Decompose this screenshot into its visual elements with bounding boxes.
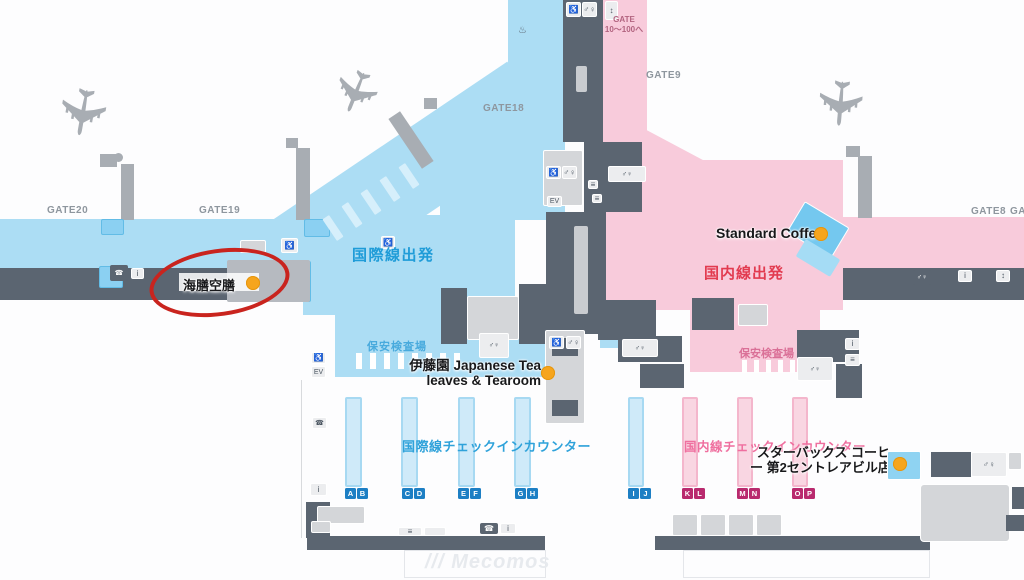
gate8-label: GATE8 [971,206,1006,217]
airplane-icon: ✈ [805,74,871,131]
counter-letter: L [694,488,705,499]
intl-north-column [508,0,565,148]
itoen-marker-dot[interactable] [541,366,555,380]
counter-badge-mn: M N [737,488,760,499]
watermark-slashes: /// [425,551,445,573]
counter-letter: P [804,488,815,499]
counter-letter: O [792,488,803,499]
shop-label-standard-coffee[interactable]: Standard Coffee [716,225,824,241]
kiosk-block [700,514,726,536]
counter-badge-gh: G H [515,488,538,499]
counter-letter: E [458,488,469,499]
stairs-icon: ≡ [592,194,602,203]
core-block [441,288,467,344]
wheelchair-icon: ♿ [281,238,298,253]
right-pier [828,217,1024,268]
counter-badge-ef: E F [458,488,481,499]
shop-label-starbucks[interactable]: スターバックス コーヒ ー 第2セントレアビル店 [750,445,890,475]
counter-letter: N [749,488,760,499]
stairs-icon: ≡ [845,354,860,366]
intl-checkin-label: 国際線チェックインカウンター [402,436,591,455]
core-block [836,364,862,398]
counter-letter: D [414,488,425,499]
landside-corridor [655,536,930,550]
gate18-label: GATE18 [483,103,524,114]
counter-badge-kl: K L [682,488,705,499]
info-icon: i [310,483,327,496]
kiosk-block [728,514,754,536]
landside-corridor [307,536,545,550]
kiosk-block [672,514,698,536]
airport-terminal-map: ✈ ✈ ✈ A B C D E F G H I [0,0,1024,580]
counter-letter: A [345,488,356,499]
kiosk-block [311,521,331,533]
annex-block [1006,515,1024,531]
gate-note-line1: GATE [594,15,654,25]
counter-badge-cd: C D [402,488,425,499]
counter-letter: G [515,488,526,499]
core-block [519,284,547,344]
phone-icon: ☎ [480,523,498,534]
core-block [640,364,684,388]
annex-building [920,484,1010,542]
starbucks-line1: スターバックス コーヒ [750,445,890,460]
core-block [692,298,734,330]
restroom-icon: ♂♀ [797,357,833,381]
counter-letter: M [737,488,748,499]
core-block [552,400,578,416]
security-lanes-dom [742,360,796,373]
gate-note-line2: 10～100へ [594,25,654,35]
standard-coffee-marker-dot[interactable] [814,227,828,241]
gate19-label: GATE19 [199,205,240,216]
jet-bridge [296,148,310,220]
restroom-icon: ♂♀ [971,452,1007,477]
counter-letter: C [402,488,413,499]
counter-letter: J [640,488,651,499]
elevator-icon: EV [311,366,326,378]
kiosk-block [424,527,446,536]
counter-badge-ij: I J [628,488,651,499]
restroom-icon: ♂♀ [562,166,577,179]
watermark-text: Mecomos [451,551,550,573]
wheelchair-icon: ♿ [546,166,561,179]
restroom-icon: ♂♀ [608,166,646,182]
info-icon: i [500,523,516,534]
dom-departures-label: 国内線出発 [704,262,784,283]
elevator-shaft [574,226,588,314]
building-outline [683,550,930,578]
kiosk-block [756,514,782,536]
counter-letter: F [470,488,481,499]
shop-label-itoen[interactable]: 伊藤園 Japanese Tea leaves & Tearoom [405,358,541,388]
jet-bridge [121,164,134,220]
counter-letter: H [527,488,538,499]
gate-note: GATE 10～100へ [594,15,654,35]
wheelchair-icon: ♿ [566,2,581,17]
starbucks-marker-dot[interactable] [893,457,907,471]
wheelchair-icon: ♿ [311,352,326,364]
restroom-icon: ♂♀ [479,333,509,358]
updown-icon: ↕ [996,270,1010,282]
info-icon: i [131,268,144,279]
annex-block [1008,452,1022,470]
wheelchair-icon: ♿ [549,336,564,349]
counter-letter: B [357,488,368,499]
jet-bridge [858,156,872,218]
jet-bridge [424,98,437,109]
restroom-icon: ♂♀ [566,336,581,349]
core-block [598,300,656,340]
airplane-icon: ✈ [46,80,118,144]
security-intl-label: 保安検査場 [367,338,427,354]
counter-badge-ab: A B [345,488,368,499]
info-icon: i [845,338,860,350]
counter-letter: K [682,488,693,499]
watermark: /// Mecomos [425,551,550,574]
checkin-counter-strip [628,397,644,487]
counter-letter: I [628,488,639,499]
itoen-line1: 伊藤園 Japanese Tea [405,358,541,373]
restroom-icon: ♂♀ [913,270,931,285]
info-icon: i [958,270,972,282]
counter-badge-op: O P [792,488,815,499]
gate7-label: GATE7 [1010,206,1024,217]
checkin-counter-strip [345,397,362,487]
gate9-label: GATE9 [646,70,681,81]
phone-icon: ☎ [110,265,128,281]
starbucks-line2: ー 第2セントレアビル店 [750,460,890,475]
itoen-line2: leaves & Tearoom [405,373,541,388]
hot-spring-icon: ♨ [518,26,530,38]
gate-door [101,219,124,235]
annex-block [931,452,971,477]
jet-bridge [114,153,123,162]
stairs-icon: ≡ [588,180,598,189]
phone-icon: ☎ [312,417,327,429]
gate20-label: GATE20 [47,205,88,216]
building-outline [301,380,302,538]
intl-departures-label: 国際線出発 [352,244,435,265]
jet-bridge [846,146,860,157]
restroom-icon: ♂♀ [622,339,658,357]
elevator-icon: EV [547,196,562,207]
stairs-icon: ≡ [398,527,422,536]
airplane-icon: ✈ [318,58,390,125]
elevator-shaft [576,66,587,92]
security-dom-label: 保安検査場 [739,345,794,361]
core-service-block [738,304,768,326]
jet-bridge [286,138,298,148]
annex-block [1012,487,1024,509]
